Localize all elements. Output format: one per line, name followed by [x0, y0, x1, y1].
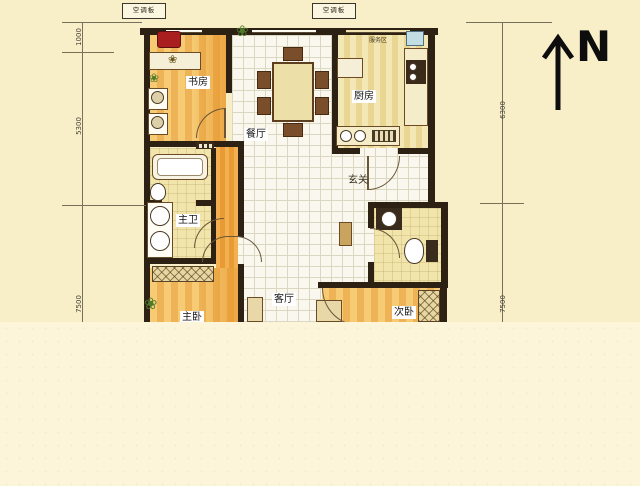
wall-hallway-right-lower — [238, 264, 244, 322]
floor-plan-canvas: ❀ ❀ ❀ — [0, 0, 640, 322]
wall-secondbedroom-top-right — [366, 282, 447, 288]
master-bath-label: 主卫 — [176, 214, 200, 227]
wall-bath-divider-right — [196, 200, 216, 206]
dim-tick-left-3 — [62, 205, 146, 206]
dim-tick-right-1 — [466, 22, 552, 23]
dim-tick-right-2 — [480, 203, 524, 204]
kitchen-basin-1 — [340, 130, 352, 142]
dining-plant-icon: ❀ — [236, 24, 249, 39]
second-toilet — [404, 238, 424, 264]
vanity-sink-2 — [150, 231, 170, 251]
study-door-leaf — [224, 108, 226, 138]
living-label: 客厅 — [272, 293, 296, 306]
entry-cabinet — [339, 222, 352, 246]
wall-secondbedroom-right-outer — [440, 282, 447, 322]
wall-secondbath-right-outer — [441, 202, 448, 288]
service-area-label: 服务区 — [369, 36, 387, 45]
study-red-chair — [157, 31, 181, 48]
desk-plant-icon: ❀ — [168, 54, 177, 65]
second-bath-sink — [381, 211, 397, 227]
kitchen-grill — [372, 130, 396, 142]
study-plant-icon: ❀ — [149, 72, 159, 84]
master-bedroom-plant-icon: ❀ — [144, 296, 157, 312]
wall-kitchen-right-outer — [428, 28, 435, 154]
wall-secondbath-left-upper — [368, 202, 374, 228]
dining-table — [272, 62, 314, 122]
kitchen-window — [346, 28, 410, 35]
dim-left-1000: 1000 — [75, 20, 83, 54]
second-toilet-tank — [426, 240, 438, 262]
dining-chair-left-2 — [257, 97, 271, 115]
radiator-grill — [196, 142, 214, 149]
stove-burner-2 — [409, 73, 417, 81]
entry-label: 玄关 — [346, 174, 370, 187]
study-label: 书房 — [186, 76, 210, 89]
bathtub-inner — [157, 158, 203, 176]
dim-right-7500: 7500 — [499, 287, 507, 321]
wall-kitchen-bottom-left — [332, 148, 360, 154]
second-bedroom-label: 次卧 — [392, 306, 416, 319]
dim-tick-left-2 — [62, 52, 114, 53]
kitchen-sink — [406, 31, 424, 46]
dim-right-6300: 6300 — [499, 93, 507, 127]
vanity-sink-1 — [150, 206, 170, 226]
north-label: N — [576, 22, 611, 71]
lower-blank-area — [0, 322, 640, 486]
dining-chair-right-1 — [315, 71, 329, 89]
master-wardrobe — [152, 266, 214, 282]
dim-left-7500: 7500 — [75, 287, 83, 321]
floor-plan-page: ❀ ❀ ❀ — [0, 0, 640, 486]
stove-burner-1 — [409, 63, 417, 71]
wall-study-bottom — [144, 141, 238, 147]
dim-tick-left-1 — [62, 22, 142, 23]
dining-chair-bottom — [283, 123, 303, 137]
kitchen-cabinet — [337, 58, 363, 78]
living-console — [247, 297, 263, 322]
dining-chair-right-2 — [315, 97, 329, 115]
kitchen-basin-2 — [354, 130, 366, 142]
dining-chair-top — [283, 47, 303, 61]
second-wardrobe — [418, 290, 440, 322]
wall-study-right — [226, 28, 232, 93]
master-bedroom-label: 主卧 — [180, 311, 204, 322]
dining-window — [252, 28, 316, 35]
dim-left-5300: 5300 — [75, 109, 83, 143]
ac-panel-right: 空调板 — [312, 3, 356, 19]
wall-entry-right-outer — [428, 154, 435, 202]
dining-label: 餐厅 — [244, 128, 268, 141]
ac-panel-left: 空调板 — [122, 3, 166, 19]
dim-line-right — [502, 22, 503, 322]
dining-chair-left-1 — [257, 71, 271, 89]
dim-line-left — [82, 22, 83, 322]
study-armchair-2-cushion — [151, 116, 164, 129]
study-armchair-1-cushion — [151, 91, 164, 104]
kitchen-label: 厨房 — [352, 90, 376, 103]
master-toilet — [150, 183, 166, 201]
wall-hallway-right-upper — [238, 141, 244, 237]
